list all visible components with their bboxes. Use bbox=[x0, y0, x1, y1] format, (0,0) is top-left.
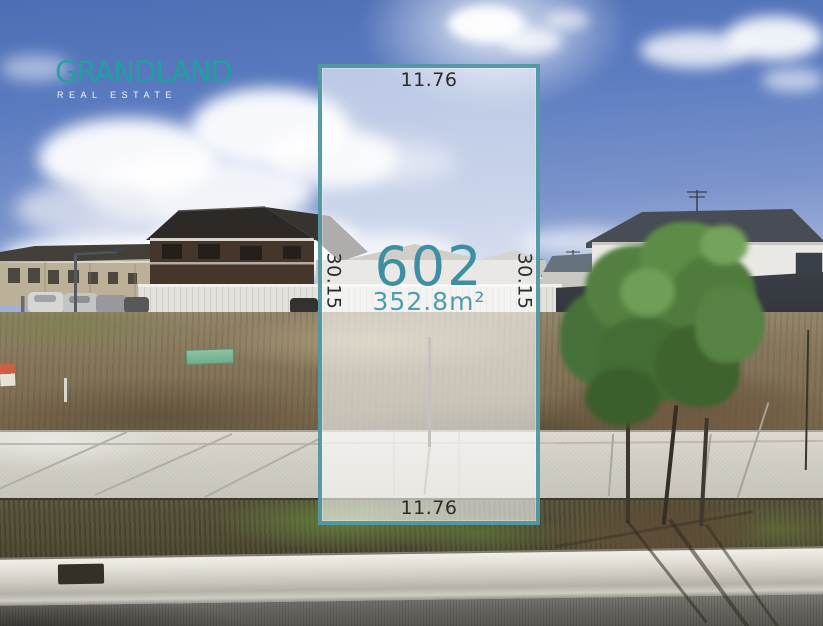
dimension-bottom: 11.76 bbox=[322, 497, 536, 520]
curb-drain bbox=[58, 564, 104, 585]
lot-area: 352.8m² bbox=[322, 289, 536, 314]
tree-foliage bbox=[585, 368, 660, 426]
brand-name: GRANDLAND bbox=[55, 58, 232, 87]
survey-peg bbox=[64, 378, 67, 402]
brand-tagline: REAL ESTATE bbox=[57, 90, 232, 100]
lot-boundary-overlay: 11.76 602 352.8m² 30.15 30.15 11.76 bbox=[318, 64, 540, 525]
dimension-left: 30.15 bbox=[322, 253, 345, 310]
marker-sign bbox=[0, 364, 16, 387]
brand-logo: GRANDLAND REAL ESTATE bbox=[55, 58, 232, 100]
photo-canvas: 11.76 602 352.8m² 30.15 30.15 11.76 GRAN… bbox=[0, 0, 823, 626]
tree-foliage bbox=[700, 225, 748, 265]
utility-pit-lid bbox=[186, 348, 234, 365]
dimension-top: 11.76 bbox=[322, 69, 536, 92]
lot-number: 602 bbox=[322, 240, 536, 294]
sidewalk-joint bbox=[0, 443, 320, 445]
tree-foliage bbox=[620, 268, 675, 316]
tree-trunk bbox=[626, 415, 630, 523]
dimension-right: 30.15 bbox=[513, 253, 536, 310]
